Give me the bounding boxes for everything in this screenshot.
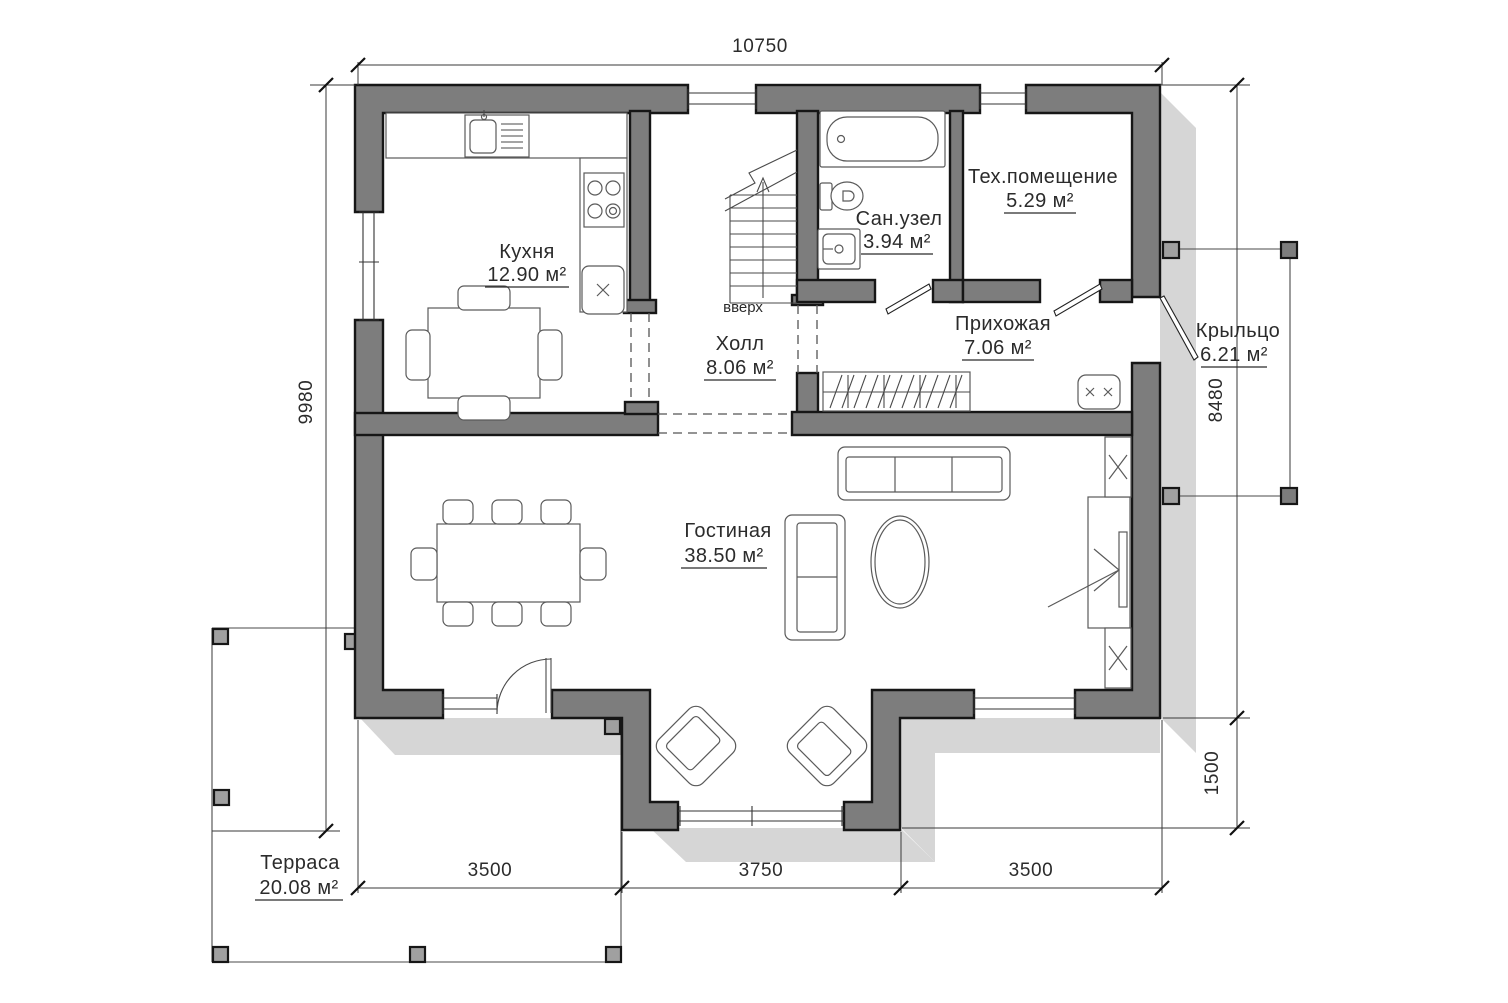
dim-top: 10750	[732, 36, 788, 57]
terrace-post	[606, 947, 621, 962]
svg-text:8.06 м²: 8.06 м²	[706, 357, 774, 379]
label-bathroom: Сан.узел 3.94 м²	[856, 208, 943, 254]
window-terrace-sidelight	[443, 694, 497, 714]
stairs-direction-label: вверх	[723, 299, 763, 316]
svg-text:7.06 м²: 7.06 м²	[964, 337, 1032, 359]
tech-room-door-leaf	[1054, 284, 1102, 316]
dining-table-with-chairs	[411, 500, 606, 626]
porch-post	[1281, 242, 1297, 258]
wall-tech-bottom-right	[1100, 280, 1132, 302]
svg-text:38.50 м²: 38.50 м²	[684, 545, 763, 567]
wall-bath-bottom	[797, 280, 875, 302]
porch-post	[1163, 488, 1179, 504]
label-tech-room: Тех.помещение 5.29 м²	[968, 166, 1118, 213]
wall-bath-tech	[950, 111, 963, 302]
wall-kitchen-hall-end	[624, 300, 656, 313]
kitchen-table	[406, 286, 562, 420]
dim-bottom-right: 3500	[1009, 860, 1054, 881]
wall-top-middle	[756, 85, 980, 113]
wall-hall-entry-stub	[797, 373, 818, 413]
wall-tech-bottom	[963, 280, 1040, 302]
shoe-cabinet	[1078, 375, 1120, 409]
porch-post	[1281, 488, 1297, 504]
label-kitchen: Кухня 12.90 м²	[485, 241, 569, 287]
stove	[584, 173, 624, 227]
toilet	[820, 182, 863, 210]
svg-text:Сан.узел: Сан.узел	[856, 208, 943, 230]
terrace-post	[214, 790, 229, 805]
entry-furniture	[823, 372, 1120, 411]
dim-bottom-left: 3500	[468, 860, 513, 881]
wall-bath-bottom-right	[933, 280, 963, 302]
cabinet-x-top	[1105, 437, 1131, 497]
armchair-left	[652, 702, 740, 790]
kitchen-sink	[465, 110, 529, 157]
label-hall: Холл 8.06 м²	[704, 333, 776, 380]
floor-plan-drawing: вверх	[0, 0, 1508, 1003]
svg-text:Крыльцо: Крыльцо	[1196, 320, 1280, 342]
wall-under-kitchen-notch	[625, 402, 658, 414]
cabinet-x-bottom	[1105, 628, 1131, 688]
label-entry-hall: Прихожая 7.06 м²	[955, 313, 1051, 360]
terrace-door	[497, 658, 551, 713]
svg-text:Тех.помещение: Тех.помещение	[968, 166, 1118, 188]
sofa-side	[785, 515, 845, 640]
window-hall-top	[688, 89, 756, 109]
svg-text:12.90 м²: 12.90 м²	[487, 264, 566, 286]
terrace-post	[213, 947, 228, 962]
staircase: вверх	[723, 150, 797, 316]
wardrobe-hatched	[823, 372, 970, 411]
tv-unit	[1048, 497, 1130, 628]
svg-text:Гостиная: Гостиная	[684, 520, 771, 542]
terrace-deck	[212, 628, 622, 962]
window-bay	[678, 806, 844, 826]
window-living-bottom-right	[974, 694, 1075, 714]
svg-text:6.21 м²: 6.21 м²	[1200, 344, 1268, 366]
dim-left: 9980	[296, 380, 317, 425]
svg-text:3.94 м²: 3.94 м²	[863, 231, 931, 253]
dishwasher	[582, 266, 624, 314]
armchair-right	[783, 702, 871, 790]
svg-text:Холл: Холл	[716, 333, 765, 355]
terrace-post	[605, 719, 620, 734]
wall-kitchen-hall	[630, 111, 650, 307]
wall-hall-bath	[797, 111, 818, 295]
label-living-room: Гостиная 38.50 м²	[681, 520, 772, 568]
svg-text:Кухня: Кухня	[499, 241, 555, 263]
dim-right-upper: 8480	[1206, 378, 1227, 423]
bathtub	[820, 111, 945, 167]
dim-bottom-middle: 3750	[739, 860, 784, 881]
terrace-post	[213, 629, 228, 644]
window-kitchen-left	[359, 212, 379, 320]
wall-bay-left	[552, 690, 678, 830]
svg-text:Прихожая: Прихожая	[955, 313, 1051, 335]
dim-right-lower: 1500	[1202, 751, 1223, 796]
washbasin	[818, 229, 860, 269]
wall-under-entry	[792, 412, 1132, 435]
coffee-table	[871, 516, 929, 608]
floor-plan-canvas: вверх	[0, 0, 1508, 1003]
window-tech-top	[980, 89, 1026, 109]
svg-text:Терраса: Терраса	[260, 852, 340, 874]
svg-text:20.08 м²: 20.08 м²	[259, 877, 338, 899]
sofa-top	[838, 447, 1010, 500]
label-terrace: Терраса 20.08 м²	[255, 852, 343, 900]
porch-post	[1163, 242, 1179, 258]
svg-text:5.29 м²: 5.29 м²	[1006, 190, 1074, 212]
terrace-post	[410, 947, 425, 962]
bathroom-door-leaf	[886, 284, 931, 314]
label-porch: Крыльцо 6.21 м²	[1196, 320, 1280, 367]
